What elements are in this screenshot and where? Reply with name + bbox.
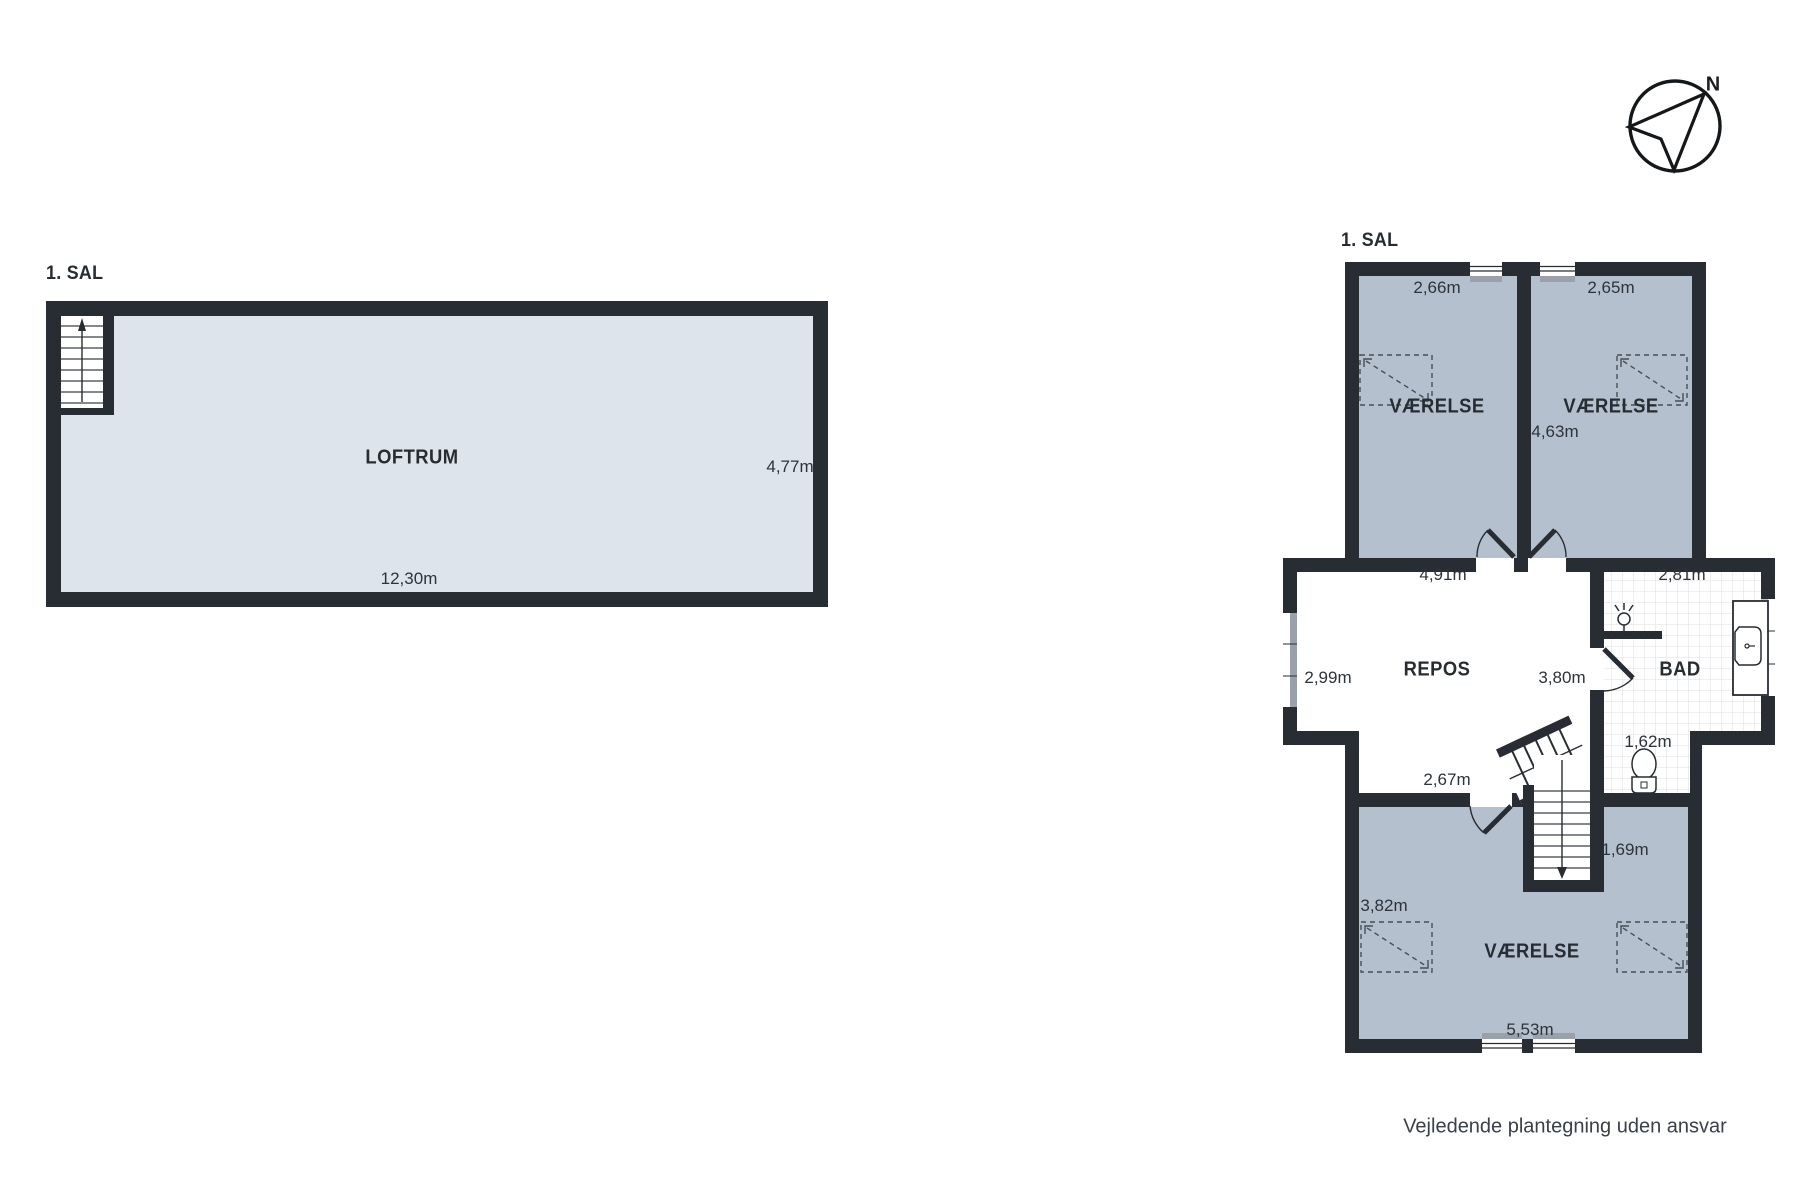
window-top-right: [1540, 262, 1575, 282]
staircase-shaft: [1523, 745, 1604, 892]
right-plan-floor-label: 1. SAL: [1341, 230, 1398, 252]
bedroom-top-right-depth-label: 4,63m: [1531, 422, 1578, 442]
toilet-icon: [1632, 749, 1656, 793]
window-top-left: [1470, 262, 1502, 282]
sink-icon: [1733, 601, 1768, 695]
landing-name-label: REPOS: [1404, 659, 1471, 682]
door-opening-bottom: [1470, 793, 1512, 807]
door-opening-bathroom: [1590, 648, 1604, 690]
left-plan-floor-label: 1. SAL: [46, 263, 103, 285]
landing-width-bottom-label: 2,67m: [1423, 770, 1470, 790]
stairs-width-label: 1,69m: [1601, 840, 1648, 860]
loftrum-width-label: 12,30m: [381, 569, 438, 589]
loftrum-name-label: LOFTRUM: [365, 447, 458, 470]
compass-icon: [1620, 60, 1750, 190]
bedroom-bottom-name-label: VÆRELSE: [1484, 941, 1579, 964]
landing-depth-left-label: 2,99m: [1304, 668, 1351, 688]
window-landing-left: [1283, 612, 1297, 708]
bathroom-width-label: 2,81m: [1658, 565, 1705, 585]
bathroom-toilet-width-label: 1,62m: [1624, 732, 1671, 752]
door-opening-top-left: [1476, 558, 1514, 572]
landing-depth-right-label: 3,80m: [1538, 668, 1585, 688]
bedroom-top-left-width-label: 2,66m: [1413, 278, 1460, 298]
bedroom-bottom-width-label: 5,53m: [1506, 1020, 1553, 1040]
disclaimer-text: Vejledende plantegning uden ansvar: [1403, 1116, 1727, 1139]
landing-width-top-label: 4,91m: [1419, 565, 1466, 585]
door-opening-top-right: [1528, 558, 1566, 572]
staircase-icon: [61, 316, 114, 415]
bathroom-name-label: BAD: [1659, 659, 1700, 682]
loftrum-depth-label: 4,77m: [766, 457, 813, 477]
bedroom-bottom-left-width-label: 3,82m: [1360, 896, 1407, 916]
bedroom-top-right-width-label: 2,65m: [1587, 278, 1634, 298]
bathroom-partial-wall: [1604, 631, 1662, 639]
bedroom-top-left-name-label: VÆRELSE: [1389, 396, 1484, 419]
compass-north-label: N: [1706, 74, 1720, 97]
bedroom-top-right-name-label: VÆRELSE: [1563, 396, 1658, 419]
